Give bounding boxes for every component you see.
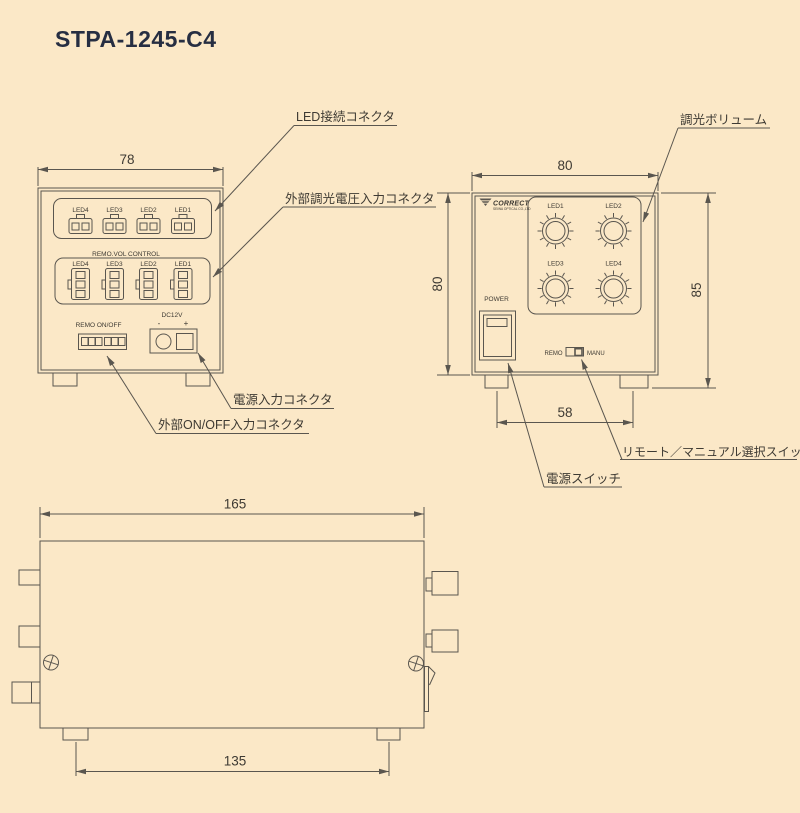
callout-onoff-text: 外部ON/OFF入力コネクタ <box>158 417 305 432</box>
dc-power-connector: DC12V - + <box>150 312 197 353</box>
front-foot-left <box>53 373 77 386</box>
callout-mode-text: リモート／マニュアル選択スイッチ <box>622 445 800 459</box>
side-view: 165 <box>12 497 458 777</box>
led-out-label-4: LED4 <box>72 207 89 214</box>
dimension-width-80: 80 <box>472 158 658 191</box>
side-rear-connector-bottom <box>12 682 40 703</box>
dc12v-label: DC12V <box>162 312 184 319</box>
knob-label-led2: LED2 <box>605 203 622 210</box>
callout-dimming-text: 外部調光電圧入力コネクタ <box>285 191 435 206</box>
remo-vol-title: REMO.VOL CONTROL <box>92 251 160 258</box>
mode-remo-label: REMO <box>545 351 563 357</box>
mode-manu-label: MANU <box>587 351 605 357</box>
knob-label-led3: LED3 <box>547 261 564 268</box>
remo-vol-label-1: LED1 <box>175 261 192 268</box>
remo-vol-label-3: LED3 <box>106 261 123 268</box>
side-foot-right <box>377 728 400 740</box>
side-knob-bottom <box>426 630 458 652</box>
led-connector-1 <box>172 215 195 234</box>
dimmer-knob-led3[interactable] <box>538 271 574 307</box>
remote-onoff-connector: REMO ON/OFF <box>76 322 127 350</box>
dimmer-knob-led4[interactable] <box>596 271 632 307</box>
led-out-label-1: LED1 <box>175 207 192 214</box>
dim-label-135: 135 <box>224 754 247 769</box>
power-switch[interactable]: POWER <box>480 296 516 360</box>
brand-logo: CORRECT SEIWA OPTICAL CO.,LTD <box>480 199 532 211</box>
panel-enclosure-outline <box>472 193 658 375</box>
led-out-label-2: LED2 <box>140 207 157 214</box>
technical-drawing: STPA-1245-C4 78 LED4 LED3 LED2 LED1 <box>0 0 800 808</box>
dim-label-85: 85 <box>689 282 704 297</box>
front-foot-right <box>186 373 210 386</box>
side-knob-top <box>426 572 458 596</box>
side-rear-connector-middle <box>19 626 40 647</box>
side-rear-connector-top <box>19 570 40 585</box>
screw-left-icon <box>42 653 61 672</box>
led-connector-4 <box>69 215 92 234</box>
dimension-height-80: 80 <box>430 193 470 375</box>
led-connector-2 <box>137 215 160 234</box>
knob-label-led1: LED1 <box>547 203 564 210</box>
dimension-width-78: 78 <box>38 152 223 186</box>
dc-plus-label: + <box>184 319 189 328</box>
callout-power-switch: 電源スイッチ <box>508 363 622 487</box>
callout-power-input: 電源入力コネクタ <box>198 353 334 409</box>
logo-triangle-icon <box>480 199 492 207</box>
dim-label-78: 78 <box>119 152 134 167</box>
remo-vol-connector-1 <box>171 269 193 300</box>
logo-subtext: SEIWA OPTICAL CO.,LTD <box>493 207 531 211</box>
callout-volume: 調光ボリューム <box>643 113 770 222</box>
remo-onoff-label: REMO ON/OFF <box>76 322 122 329</box>
side-power-lever <box>425 667 436 712</box>
dim-label-80h: 80 <box>430 276 445 291</box>
dimmer-knob-group: LED1 LED2 LED3 LED4 <box>528 197 641 314</box>
callout-power-input-text: 電源入力コネクタ <box>233 393 333 407</box>
dimmer-knob-led1[interactable] <box>538 213 574 249</box>
power-label: POWER <box>484 296 509 303</box>
dimension-feet-135: 135 <box>76 742 389 776</box>
remo-vol-connector-3 <box>102 269 124 300</box>
callout-led-text: LED接続コネクタ <box>296 109 395 124</box>
knob-label-led4: LED4 <box>605 261 622 268</box>
side-enclosure-outline <box>40 541 424 728</box>
remo-vol-label-4: LED4 <box>72 261 89 268</box>
dim-label-165: 165 <box>224 497 247 512</box>
led-out-label-3: LED3 <box>106 207 123 214</box>
control-panel-view: 80 80 85 CORRECT SEIWA OPTICAL CO.,LTD <box>430 113 800 487</box>
dimension-height-85: 85 <box>652 193 716 388</box>
callout-dimming-input: 外部調光電圧入力コネクタ <box>213 191 436 277</box>
mode-selector-switch[interactable]: REMO MANU <box>545 348 605 358</box>
led-connector-group: LED4 LED3 LED2 LED1 <box>54 199 212 239</box>
panel-foot-right <box>620 375 648 388</box>
callout-power-text: 電源スイッチ <box>546 472 621 486</box>
remo-vol-connector-2 <box>136 269 158 300</box>
side-foot-left <box>63 728 88 740</box>
page-title: STPA-1245-C4 <box>55 26 217 52</box>
screw-right-icon <box>407 654 426 673</box>
dimmer-knob-led2[interactable] <box>596 213 632 249</box>
remo-vol-connector-4 <box>68 269 90 300</box>
front-enclosure-outline <box>38 188 223 373</box>
front-panel-view: 78 LED4 LED3 LED2 LED1 REMO.VOL CONTROL … <box>38 109 436 434</box>
remote-volume-connector-group: REMO.VOL CONTROL LED4 LED3 LED2 LED1 <box>55 251 210 304</box>
callout-volume-text: 調光ボリューム <box>680 113 767 127</box>
mode-slider-knob[interactable] <box>575 349 582 356</box>
led-connector-3 <box>103 215 126 234</box>
dimension-width-165: 165 <box>40 497 424 539</box>
panel-foot-left <box>485 375 508 388</box>
remo-vol-label-2: LED2 <box>140 261 157 268</box>
dim-label-80w: 80 <box>557 158 572 173</box>
dim-label-58: 58 <box>557 405 572 420</box>
dc-minus-label: - <box>158 319 161 328</box>
